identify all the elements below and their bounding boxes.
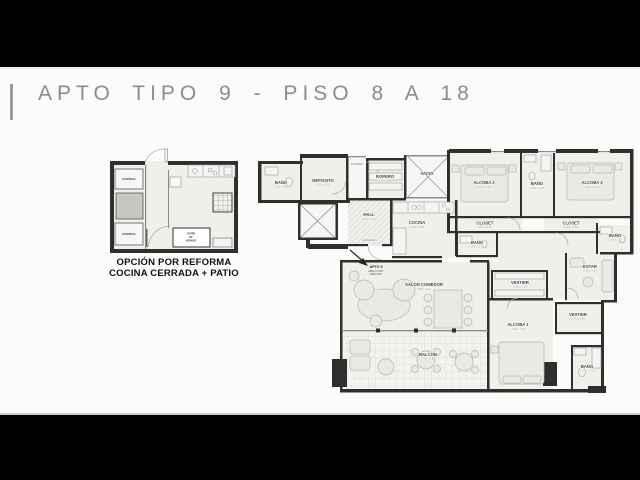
room-dims-closet-3: 2.40 x 0.60: [564, 225, 578, 229]
room-dims-alcoba-1: 3.10 x 4.10: [511, 327, 525, 331]
small-box: [170, 177, 181, 187]
kitchen-counter-top: [188, 165, 235, 177]
dining-table: [424, 290, 472, 328]
torre-label-3: HORNOS: [186, 240, 197, 243]
room-dims-closet-2: 3.20 x 0.60: [478, 225, 492, 229]
room-dims-bano-3: 1.50 x 1.20: [608, 237, 622, 241]
page-title-row: APTO TIPO 9 - PISO 8 A 18: [10, 82, 474, 120]
room-dims-alcoba-2: 3.20 x 3.15: [477, 185, 491, 189]
room-label-acceso-top: ACCESO: [351, 162, 364, 166]
room-dims-bano-2: 1.55 x 3.00: [530, 186, 544, 190]
bed-alcoba-1: [491, 342, 544, 384]
room-label-vacio: VACIO: [421, 171, 435, 176]
torre-de-hornos-box: TORRE DE HORNOS: [173, 228, 210, 247]
floor-plan-drawing: BAÑO 1.50 x 1.90 DEPOSITO 1.60 x 2.20 AC…: [256, 140, 634, 402]
reform-caption: OPCIÓN POR REFORMA COCINA CERRADA + PATI…: [99, 258, 249, 279]
apto-info-2: AREA PRIV.: [369, 273, 382, 276]
room-dims-balcon: 7.40 x 2.80: [421, 357, 435, 361]
letterbox-bottom: [0, 413, 640, 480]
room-dims-bano-social: 1.80 x 1.10: [470, 244, 484, 248]
room-dims-hall: 1.90 x 2.10: [362, 217, 376, 221]
title-accent-bar: [10, 84, 13, 120]
room-dims-salon-comedor: 7.05 x 3.20: [417, 287, 431, 291]
reform-caption-line2: COCINA CERRADA + PATIO: [99, 269, 249, 280]
room-dims-cocina: 2.60 x 2.90: [410, 225, 424, 229]
despensa-cabinet-top: DESPENSA: [115, 169, 143, 189]
despensa-bottom-label: DESPENSA: [122, 233, 135, 236]
room-dims-bano-1: 1.40 x 2.10: [580, 368, 594, 372]
room-dims-deposito: 1.60 x 2.20: [316, 183, 330, 187]
reform-caption-line1: OPCIÓN POR REFORMA: [99, 258, 249, 269]
page-title: APTO TIPO 9 - PISO 8 A 18: [38, 82, 474, 106]
room-dims-vestier-2: 2.00 x 1.40: [571, 316, 585, 320]
letterbox-top: [0, 0, 640, 69]
apto-label: APTO 9: [370, 265, 383, 269]
room-dims-vestier-1: 2.60 x 1.20: [513, 284, 527, 288]
room-dims-bano-deposito: 1.50 x 1.90: [274, 185, 288, 189]
counter-lower-right: [213, 238, 232, 247]
room-dims-estar: 2.30 x 2.10: [583, 268, 597, 272]
room-label-acceso-hall: ACCESO: [363, 238, 376, 242]
room-dims-alcoba-3: 3.30 x 3.15: [585, 185, 599, 189]
gray-cabinet: [116, 193, 143, 219]
reform-door-top: [145, 149, 168, 162]
despensa-cabinet-bottom: DESPENSA: [115, 223, 143, 245]
slide: APTO TIPO 9 - PISO 8 A 18: [0, 0, 640, 480]
despensa-top-label: DESPENSA: [122, 178, 135, 181]
room-dims-ropero: 1.30 x 1.90: [378, 179, 392, 183]
patio-grid: [213, 193, 232, 212]
reform-plan-drawing: DESPENSA DESPENSA TORRE DE HORNOS: [104, 148, 244, 264]
